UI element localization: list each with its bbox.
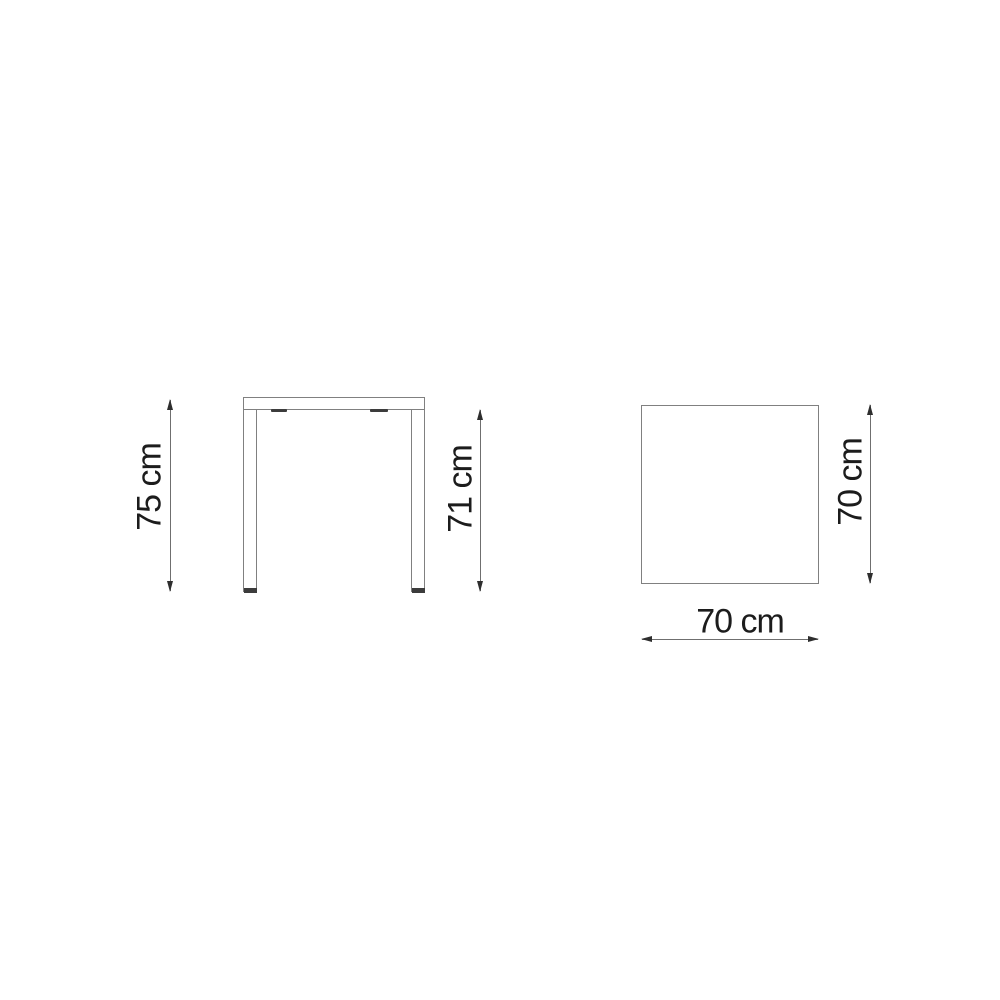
arrow-up-icon [867,404,873,415]
total-height-dimension-line [170,400,172,591]
arrow-up-icon [477,409,483,420]
width-dimension-label: 70 cm [696,603,784,642]
depth-dimension-label: 70 cm [832,438,871,526]
arrow-right-icon [808,636,819,642]
arrow-down-icon [167,581,173,592]
table-leg-right [411,410,425,592]
arrow-down-icon [867,573,873,584]
table-foot-left [244,588,257,593]
tabletop-top-view [641,405,819,584]
arrow-down-icon [477,581,483,592]
arrow-left-icon [641,636,652,642]
under-top-height-dimension-label: 71 cm [442,445,481,533]
table-leg-left [243,410,257,592]
tabletop-front [243,397,425,410]
total-height-dimension-label: 75 cm [131,443,170,531]
table-foot-right [412,588,425,593]
diagram-canvas: 75 cm 71 cm 70 cm 70 cm [0,0,1000,1000]
arrow-up-icon [167,399,173,410]
leg-mount-mark-left [271,409,287,412]
leg-mount-mark-right [370,409,388,412]
